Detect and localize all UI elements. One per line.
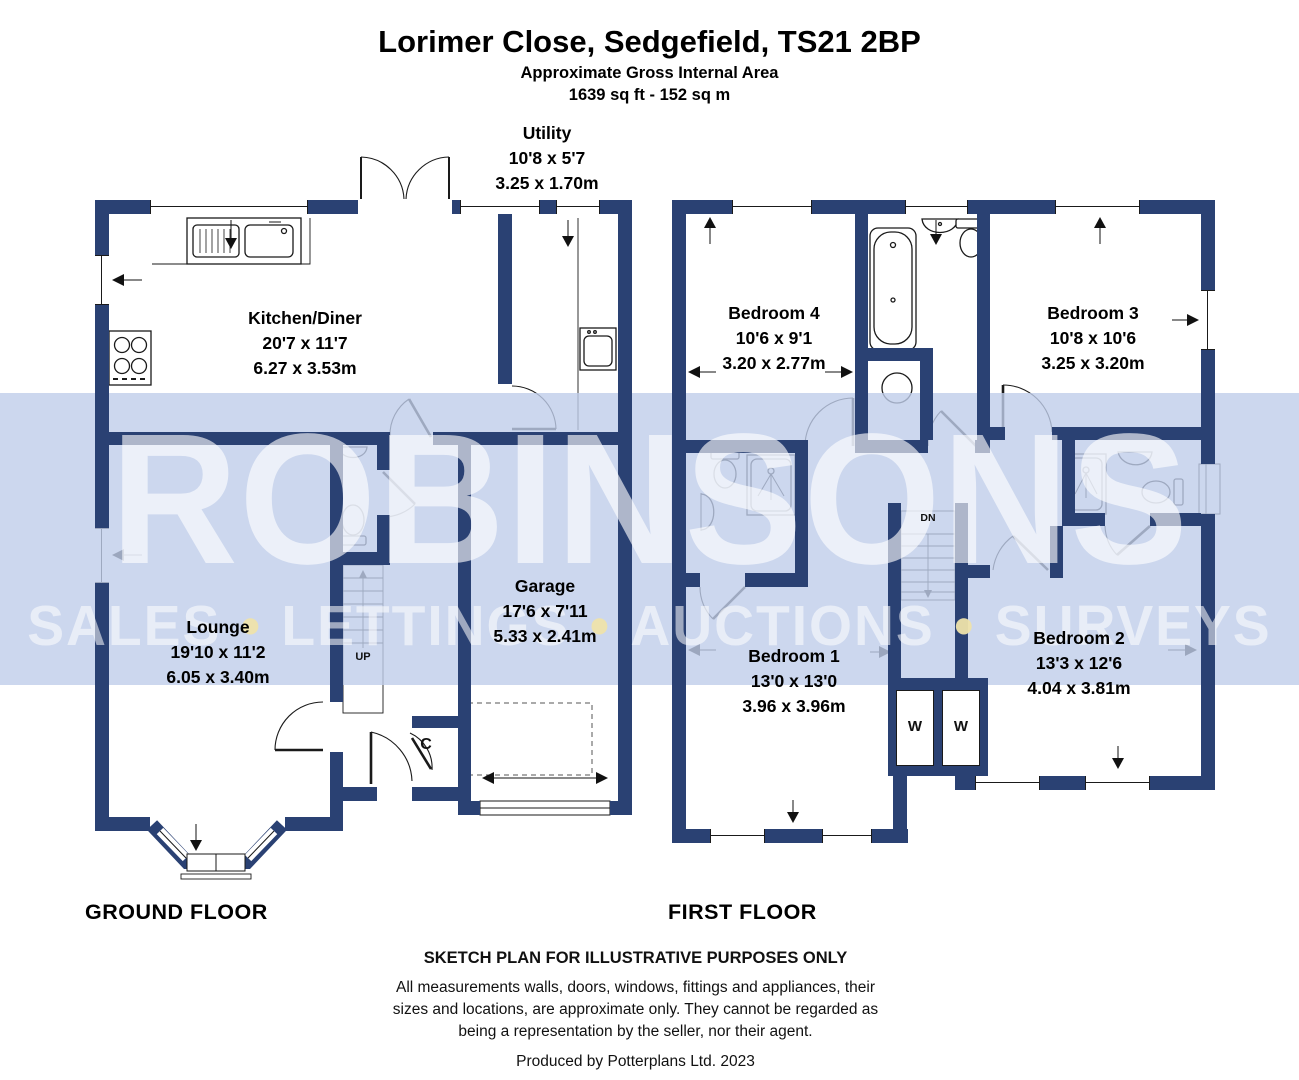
wall bbox=[1062, 513, 1105, 526]
bay-window bbox=[152, 825, 282, 879]
bathroom-sink bbox=[922, 219, 958, 233]
bedroom2-label: Bedroom 2 13'3 x 12'6 4.04 x 3.81m bbox=[981, 626, 1177, 701]
wall bbox=[109, 432, 390, 445]
wall bbox=[1201, 350, 1215, 464]
wall bbox=[412, 787, 460, 801]
utility-label: Utility 10'8 x 5'7 3.25 x 1.70m bbox=[449, 121, 645, 196]
room-name: Bedroom 3 bbox=[995, 301, 1191, 326]
kitchen-sink-unit bbox=[187, 218, 301, 264]
wall bbox=[95, 305, 109, 528]
kitchen-label: Kitchen/Diner 20'7 x 11'7 6.27 x 3.53m bbox=[207, 306, 403, 381]
wall bbox=[968, 200, 1055, 214]
wall bbox=[1052, 427, 1201, 440]
room-name: Lounge bbox=[120, 615, 316, 640]
room-metric: 6.27 x 3.53m bbox=[207, 356, 403, 381]
bedroom1-label: Bedroom 1 13'0 x 13'0 3.96 x 3.96m bbox=[696, 644, 892, 719]
room-metric: 3.25 x 3.20m bbox=[995, 351, 1191, 376]
sketch-note: SKETCH PLAN FOR ILLUSTRATIVE PURPOSES ON… bbox=[0, 949, 1285, 968]
room-name: Garage bbox=[447, 574, 643, 599]
garage-label: Garage 17'6 x 7'11 5.33 x 2.41m bbox=[447, 574, 643, 649]
window bbox=[556, 200, 600, 214]
stairs-up-label: UP bbox=[343, 651, 383, 663]
window bbox=[1201, 290, 1215, 350]
window bbox=[1085, 776, 1150, 790]
room-imperial: 17'6 x 7'11 bbox=[447, 599, 643, 624]
wall bbox=[868, 348, 928, 361]
room-name: Kitchen/Diner bbox=[207, 306, 403, 331]
room-imperial: 13'3 x 12'6 bbox=[981, 651, 1177, 676]
wall bbox=[343, 787, 377, 801]
wardrobe-right-label: W bbox=[942, 718, 980, 735]
first-floor-label: FIRST FLOOR bbox=[668, 900, 817, 925]
page-subtitle: Approximate Gross Internal Area bbox=[0, 64, 1299, 83]
garage-door bbox=[480, 801, 610, 815]
wall bbox=[95, 583, 109, 831]
window bbox=[822, 829, 872, 843]
wall bbox=[377, 445, 390, 470]
wall bbox=[1150, 513, 1201, 526]
wall bbox=[686, 440, 800, 453]
window bbox=[150, 200, 308, 214]
door-front bbox=[371, 732, 412, 784]
wall bbox=[452, 200, 460, 214]
wall bbox=[95, 817, 150, 831]
room-name: Bedroom 4 bbox=[676, 301, 872, 326]
ground-floor-label: GROUND FLOOR bbox=[85, 900, 268, 925]
wall bbox=[1040, 776, 1085, 790]
wall bbox=[672, 829, 710, 843]
page-title: Lorimer Close, Sedgefield, TS21 2BP bbox=[0, 24, 1299, 60]
room-metric: 5.33 x 2.41m bbox=[447, 624, 643, 649]
wall bbox=[977, 214, 990, 440]
french-doors bbox=[361, 157, 449, 199]
wall bbox=[1150, 776, 1215, 790]
wall bbox=[433, 432, 618, 445]
wall bbox=[540, 200, 556, 214]
room-imperial: 10'6 x 9'1 bbox=[676, 326, 872, 351]
room-metric: 6.05 x 3.40m bbox=[120, 665, 316, 690]
garage-parking-outline bbox=[468, 703, 592, 775]
hob bbox=[109, 331, 151, 385]
room-name: Utility bbox=[449, 121, 645, 146]
disclaimer-line: being a representation by the seller, no… bbox=[0, 1023, 1285, 1041]
room-metric: 3.20 x 2.77m bbox=[676, 351, 872, 376]
bath bbox=[870, 228, 916, 350]
wall bbox=[610, 801, 632, 815]
cupboard-label: C bbox=[415, 736, 437, 754]
washing-machine bbox=[580, 328, 616, 370]
window bbox=[1055, 200, 1140, 214]
room-imperial: 20'7 x 11'7 bbox=[207, 331, 403, 356]
door-lounge bbox=[275, 702, 323, 750]
window bbox=[732, 200, 812, 214]
window bbox=[905, 200, 968, 214]
wall bbox=[618, 200, 632, 815]
wall bbox=[795, 440, 808, 587]
room-imperial: 19'10 x 11'2 bbox=[120, 640, 316, 665]
window bbox=[460, 200, 540, 214]
disclaimer-line: sizes and locations, are approximate onl… bbox=[0, 1001, 1285, 1019]
wall bbox=[458, 801, 480, 815]
wall bbox=[498, 214, 512, 384]
wall bbox=[765, 829, 822, 843]
room-metric: 3.96 x 3.96m bbox=[696, 694, 892, 719]
wall bbox=[330, 752, 343, 831]
wall bbox=[330, 445, 343, 702]
room-metric: 4.04 x 3.81m bbox=[981, 676, 1177, 701]
wall bbox=[1050, 565, 1063, 578]
room-metric: 3.25 x 1.70m bbox=[449, 171, 645, 196]
wall bbox=[686, 573, 700, 587]
window bbox=[710, 829, 765, 843]
disclaimer-line: All measurements walls, doors, windows, … bbox=[0, 979, 1285, 997]
wall bbox=[990, 427, 1005, 440]
wall bbox=[955, 565, 990, 578]
room-name: Bedroom 2 bbox=[981, 626, 1177, 651]
wall bbox=[745, 573, 808, 587]
wall bbox=[975, 440, 990, 453]
lounge-label: Lounge 19'10 x 11'2 6.05 x 3.40m bbox=[120, 615, 316, 690]
wall bbox=[955, 776, 975, 790]
wall bbox=[672, 200, 686, 843]
credit-line: Produced by Potterplans Ltd. 2023 bbox=[0, 1053, 1285, 1071]
room-imperial: 10'8 x 10'6 bbox=[995, 326, 1191, 351]
wall bbox=[920, 348, 933, 440]
wall bbox=[1201, 200, 1215, 290]
wardrobe-left-label: W bbox=[896, 718, 934, 735]
wall bbox=[308, 200, 358, 214]
window bbox=[975, 776, 1040, 790]
room-name: Bedroom 1 bbox=[696, 644, 892, 669]
floorplan-page: ROBINSONS SALES • LETTINGS • AUCTIONS • … bbox=[0, 0, 1299, 1080]
room-imperial: 10'8 x 5'7 bbox=[449, 146, 645, 171]
wall bbox=[1201, 514, 1215, 790]
stairs-down-label: DN bbox=[901, 512, 955, 524]
room-imperial: 13'0 x 13'0 bbox=[696, 669, 892, 694]
bedroom3-label: Bedroom 3 10'8 x 10'6 3.25 x 3.20m bbox=[995, 301, 1191, 376]
page-area: 1639 sq ft - 152 sq m bbox=[0, 86, 1299, 105]
window bbox=[95, 255, 109, 305]
wall bbox=[812, 200, 905, 214]
wall bbox=[412, 716, 458, 728]
wall bbox=[855, 440, 928, 453]
wall bbox=[95, 200, 109, 255]
bedroom4-label: Bedroom 4 10'6 x 9'1 3.20 x 2.77m bbox=[676, 301, 872, 376]
wall bbox=[330, 552, 390, 565]
